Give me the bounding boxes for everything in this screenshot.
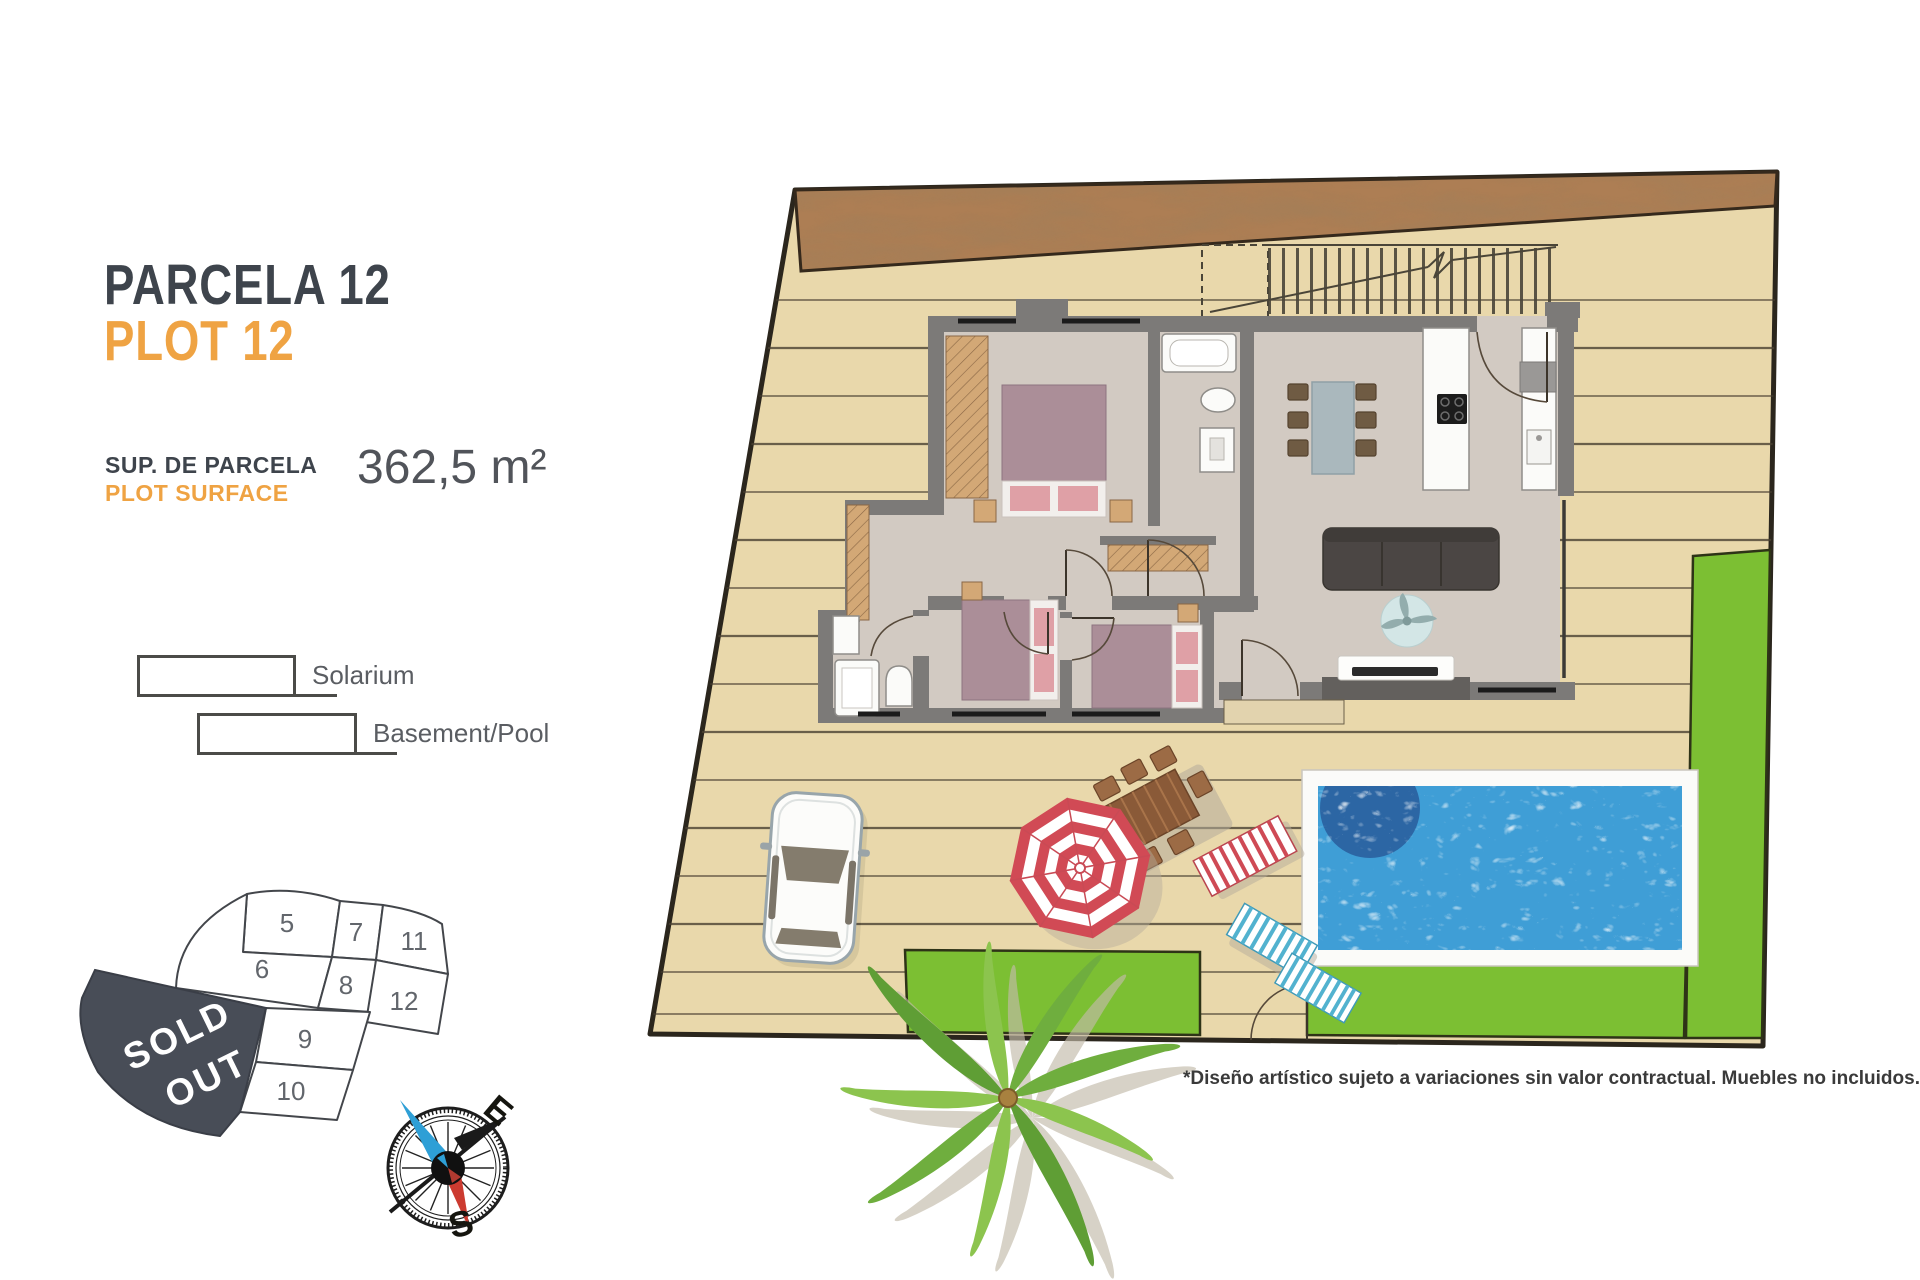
legend-swatch-basement-pool — [197, 713, 357, 755]
porch-step — [1224, 700, 1344, 724]
minimap-label-6: 6 — [255, 954, 269, 984]
minimap-label-11: 11 — [401, 926, 428, 956]
minimap-plot-9 — [256, 1008, 370, 1070]
wardrobe-bedroom2 — [847, 505, 869, 620]
page-title-es: PARCELA 12 — [104, 258, 391, 314]
pool — [1302, 758, 1698, 966]
wardrobe-bedroom3 — [1108, 545, 1208, 571]
tv-unit — [1338, 656, 1454, 680]
legend-underline-basement-pool — [197, 752, 397, 755]
sofa — [1323, 528, 1499, 590]
minimap-label-8: 8 — [339, 970, 353, 1000]
minimap-label-5: 5 — [280, 908, 294, 938]
page-title-en: PLOT 12 — [104, 314, 391, 370]
kitchen-counter — [1522, 328, 1556, 490]
kitchen-appliance — [1520, 362, 1556, 392]
cooktop — [1437, 394, 1467, 424]
site-minimap: SOLD OUT 5 6 7 8 9 10 11 12 — [80, 891, 448, 1136]
legend-underline-solarium — [137, 694, 337, 697]
legend-label-basement-pool: Basement/Pool — [373, 718, 549, 749]
surface-label-es: SUP. DE PARCELA — [105, 452, 317, 480]
legend-swatch-solarium — [137, 655, 296, 697]
surface-label-en: PLOT SURFACE — [105, 480, 317, 508]
brochure-page: SOLD OUT 5 6 7 8 9 10 11 12 — [0, 0, 1920, 1280]
surface-value: 362,5 m² — [357, 440, 546, 495]
minimap-label-9: 9 — [298, 1024, 312, 1054]
surface-labels: SUP. DE PARCELA PLOT SURFACE — [105, 452, 317, 507]
minimap-label-12: 12 — [390, 986, 419, 1016]
legend-label-solarium: Solarium — [312, 660, 415, 691]
minimap-label-7: 7 — [349, 917, 363, 947]
compass-rose-icon: E S — [388, 1087, 521, 1247]
wardrobe-bedroom1 — [946, 336, 988, 498]
page-title-block: PARCELA 12 PLOT 12 — [104, 258, 462, 370]
minimap-label-10: 10 — [277, 1076, 306, 1106]
bed-bedroom2 — [962, 582, 1058, 700]
disclaimer-text: *Diseño artístico sujeto a variaciones s… — [1183, 1068, 1920, 1090]
